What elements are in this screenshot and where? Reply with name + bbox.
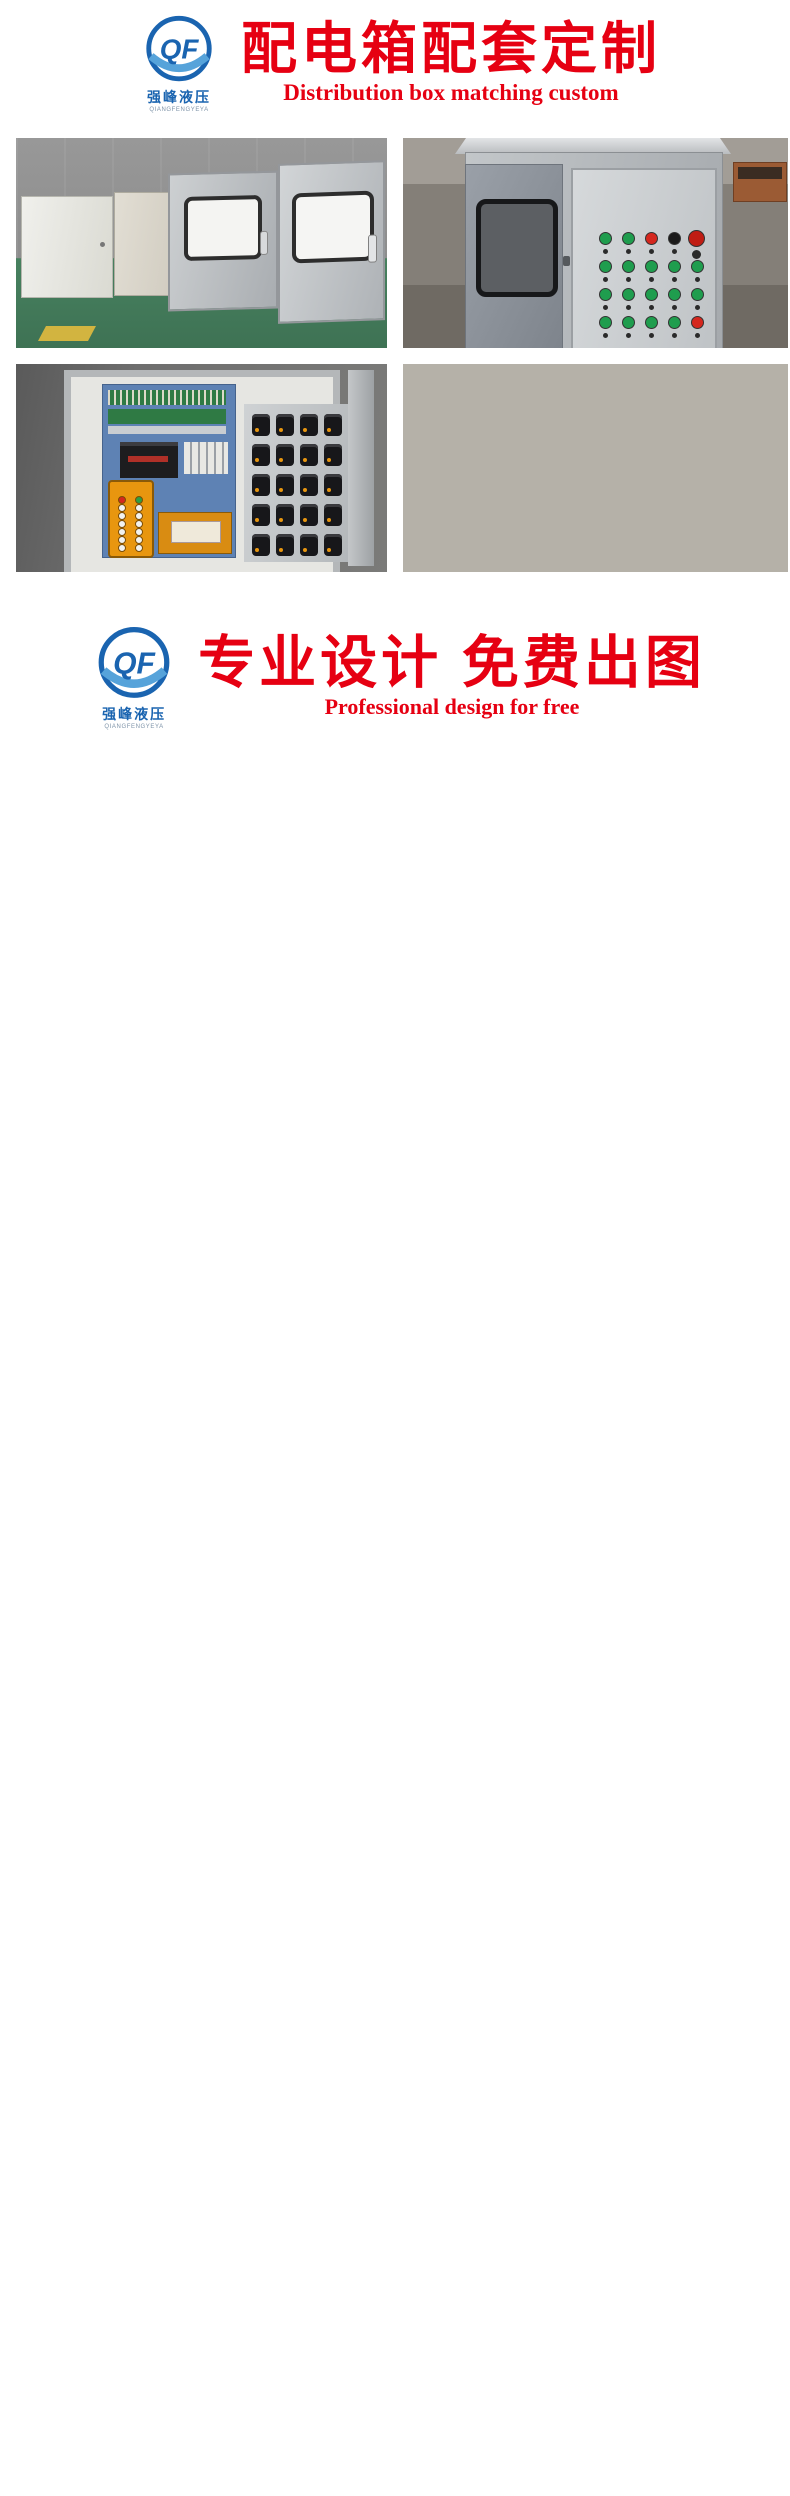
box-lock	[100, 242, 105, 247]
hydraulic-schematic-drawing	[0, 755, 790, 1340]
cable-connector	[252, 474, 270, 496]
panel-button	[691, 288, 704, 301]
qf-logo-icon: QF	[101, 629, 167, 695]
metal-box-white	[21, 196, 113, 298]
brand-logo: QF 强峰液压 QIANGFENGYEYA	[129, 14, 229, 113]
panel-button	[622, 260, 635, 273]
cylinder-drawing	[0, 1920, 790, 2496]
cable-connector	[276, 534, 294, 556]
cable-connector	[276, 444, 294, 466]
panel-button	[645, 316, 658, 329]
panel-button	[691, 316, 704, 329]
remote-button	[135, 512, 143, 520]
cable-connector	[276, 504, 294, 526]
panel-button	[691, 260, 704, 273]
remote-button	[118, 528, 126, 536]
stainless-box-window-1	[168, 171, 278, 312]
remote-button	[118, 536, 126, 544]
panel-button	[645, 260, 658, 273]
qf-logo-icon: QF	[95, 625, 173, 703]
panel-button	[599, 316, 612, 329]
cable-connector	[252, 414, 270, 436]
remote-button	[135, 528, 143, 536]
truck	[733, 162, 787, 202]
remote-button	[135, 544, 143, 552]
din-breakers	[184, 442, 228, 474]
floor-marking	[38, 326, 96, 341]
panel-button	[668, 260, 681, 273]
svg-text:QF: QF	[113, 647, 156, 680]
panel-button	[599, 232, 612, 245]
photo-stainless-boxes	[16, 138, 387, 348]
contactor-black	[120, 442, 178, 478]
pcb-terminal-row	[108, 390, 226, 405]
remote-base-orange	[158, 512, 232, 554]
brand-latin: QIANGFENGYEYA	[149, 107, 208, 113]
remote-button	[135, 504, 143, 512]
brand-logo: QF 强峰液压 QIANGFENGYEYA	[84, 625, 184, 730]
brand-name: 强峰液压	[102, 704, 166, 724]
panel-button	[688, 230, 705, 247]
panel-button	[645, 288, 658, 301]
page-title: 配电箱配套定制	[241, 20, 661, 78]
cable-connector	[276, 474, 294, 496]
remote-button	[118, 544, 126, 552]
panel-button	[668, 232, 681, 245]
manifold-block-drawing	[0, 1340, 790, 1920]
cable-connector	[300, 444, 318, 466]
cable-connector	[300, 414, 318, 436]
product-detail-page: QF 强峰液压 QIANGFENGYEYA 配电箱配套定制 Distributi…	[0, 0, 790, 2496]
cable-connector	[324, 534, 342, 556]
panel-button	[622, 288, 635, 301]
panel-button	[668, 288, 681, 301]
qf-logo-icon: QF	[143, 14, 215, 86]
panel-button	[622, 232, 635, 245]
panel-button	[645, 232, 658, 245]
door-handle	[368, 234, 377, 262]
remote-button	[135, 520, 143, 528]
brand-latin: QIANGFENGYEYA	[104, 724, 163, 730]
cable-connector	[324, 474, 342, 496]
header-professional-design: QF 强峰液压 QIANGFENGYEYA 专业设计 免费出图 Professi…	[0, 610, 790, 744]
photo-stacked-boxes	[403, 364, 788, 572]
qf-logo-icon: QF	[149, 18, 209, 78]
cable-connector	[252, 444, 270, 466]
remote-button	[118, 504, 126, 512]
open-door	[465, 164, 563, 348]
cable-connector	[276, 414, 294, 436]
brand-name: 强峰液压	[147, 87, 211, 107]
remote-button	[118, 496, 126, 504]
panel-button	[599, 260, 612, 273]
section-subtitle: Professional design for free	[325, 694, 580, 720]
remote-button	[118, 512, 126, 520]
cable-connector	[252, 534, 270, 556]
remote-button	[118, 520, 126, 528]
wiring-duct	[108, 426, 226, 434]
cable-connector	[252, 504, 270, 526]
remote-button	[135, 536, 143, 544]
panel-button	[599, 288, 612, 301]
door-handle	[260, 231, 268, 255]
remote-button	[135, 496, 143, 504]
inner-panel	[571, 168, 717, 348]
page-subtitle: Distribution box matching custom	[283, 80, 618, 106]
cable-connector	[300, 534, 318, 556]
header-distribution-box: QF 强峰液压 QIANGFENGYEYA 配电箱配套定制 Distributi…	[0, 2, 790, 124]
stainless-box-window-2	[278, 160, 385, 324]
photo-cabinet-interior-components	[16, 364, 387, 572]
panel-button	[668, 316, 681, 329]
remote-control	[108, 480, 154, 558]
panel-button	[622, 316, 635, 329]
cable-connector	[324, 504, 342, 526]
door-lock	[563, 256, 570, 266]
photo-open-control-cabinet	[403, 138, 788, 348]
cable-connector	[324, 444, 342, 466]
cable-connector	[300, 504, 318, 526]
door-connector-panel	[244, 404, 348, 562]
cable-connector	[300, 474, 318, 496]
cable-connector	[324, 414, 342, 436]
svg-text:QF: QF	[160, 33, 200, 64]
door-edge	[348, 370, 374, 566]
section-title: 专业设计 免费出图	[198, 634, 706, 693]
